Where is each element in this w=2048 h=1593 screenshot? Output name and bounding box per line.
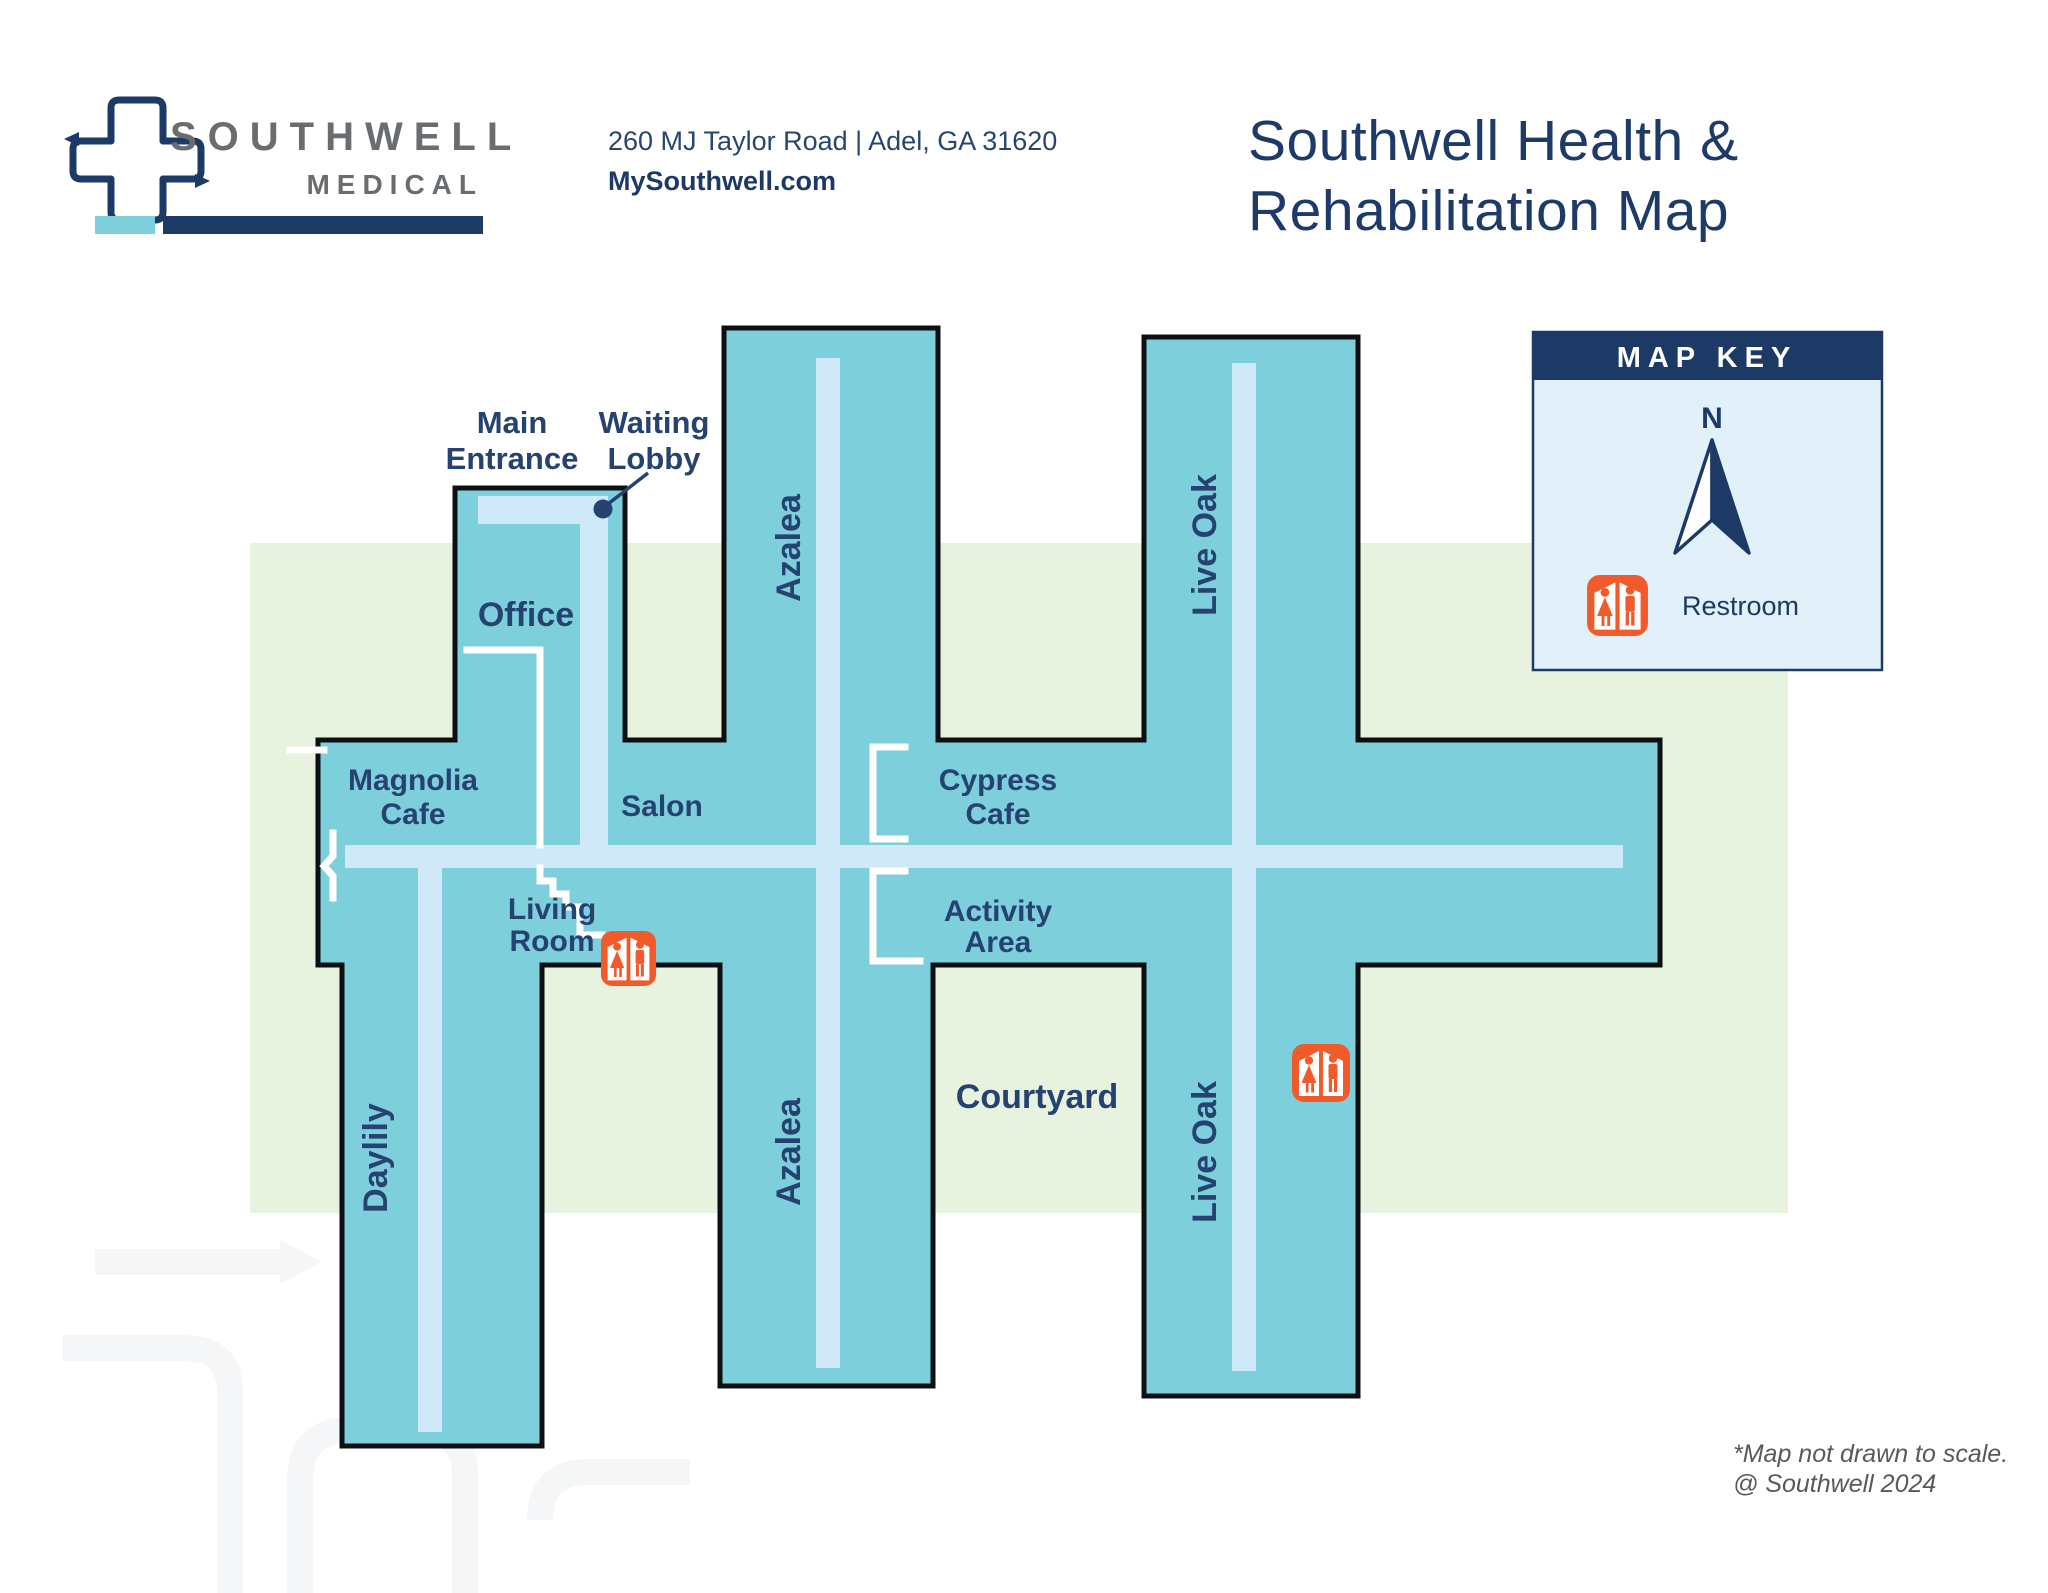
living-room-label: Living (508, 893, 596, 926)
waiting-lobby-pointer-dot (594, 500, 613, 519)
page-title: Rehabilitation Map (1248, 179, 1729, 243)
magnolia-cafe-label: Cafe (380, 798, 445, 831)
live-oak-top-strip (1232, 363, 1256, 868)
website-text: MySouthwell.com (608, 166, 836, 196)
living-room-label: Room (510, 925, 595, 958)
restroom-icon (1587, 575, 1648, 636)
live-oak-top-label: Live Oak (1186, 474, 1224, 616)
waiting-lobby-label: Waiting (599, 405, 710, 440)
building-outline (318, 328, 1660, 1446)
footnote-scale: *Map not drawn to scale. (1733, 1440, 2008, 1468)
live-oak-bottom-strip (1232, 868, 1256, 1371)
map-key-title: MAP KEY (1617, 342, 1798, 374)
main-entrance-label: Main (477, 405, 548, 440)
page-title: Southwell Health & (1248, 109, 1739, 173)
address-text: 260 MJ Taylor Road | Adel, GA 31620 (608, 126, 1057, 156)
footnote: *Map not drawn to scale. @ Southwell 202… (1733, 1440, 2008, 1498)
logo-name: SOUTHWELL (170, 115, 522, 159)
waiting-lobby-label: Lobby (608, 441, 702, 476)
azalea-bottom-label: Azalea (770, 1097, 808, 1206)
daylily-strip (418, 868, 442, 1432)
magnolia-cafe-label: Magnolia (348, 764, 478, 797)
activity-area-label: Area (965, 926, 1032, 959)
restroom-icon (1292, 1044, 1350, 1102)
cypress-cafe-label: Cafe (965, 798, 1030, 831)
facility-map-page: Main Entrance Waiting Lobby Office Azale… (0, 0, 2048, 1593)
north-label: N (1701, 402, 1723, 435)
main-entrance-label: Entrance (446, 441, 579, 476)
azalea-top-label: Azalea (770, 493, 808, 602)
cypress-cafe-label: Cypress (939, 764, 1057, 797)
logo-sub: MEDICAL (306, 169, 483, 200)
footnote-copyright: @ Southwell 2024 (1733, 1470, 1936, 1498)
logo-bar-teal (95, 216, 155, 234)
salon-label: Salon (621, 790, 703, 823)
map-canvas: Main Entrance Waiting Lobby Office Azale… (0, 0, 2048, 1593)
map-key: MAP KEY N Restroom (1533, 332, 1882, 670)
restroom-key-label: Restroom (1682, 591, 1799, 621)
restroom-icon (601, 931, 656, 986)
azalea-bottom-strip (816, 868, 840, 1368)
azalea-top-strip (816, 358, 840, 868)
courtyard-label: Courtyard (956, 1078, 1118, 1116)
activity-area-label: Activity (944, 895, 1053, 928)
office-label: Office (478, 596, 574, 634)
lobby-hall-strip (580, 496, 608, 868)
daylily-label: Daylily (357, 1103, 395, 1213)
header: SOUTHWELL MEDICAL 260 MJ Taylor Road | A… (64, 100, 1739, 243)
logo-bar-navy (163, 216, 483, 234)
live-oak-bottom-label: Live Oak (1186, 1081, 1224, 1223)
